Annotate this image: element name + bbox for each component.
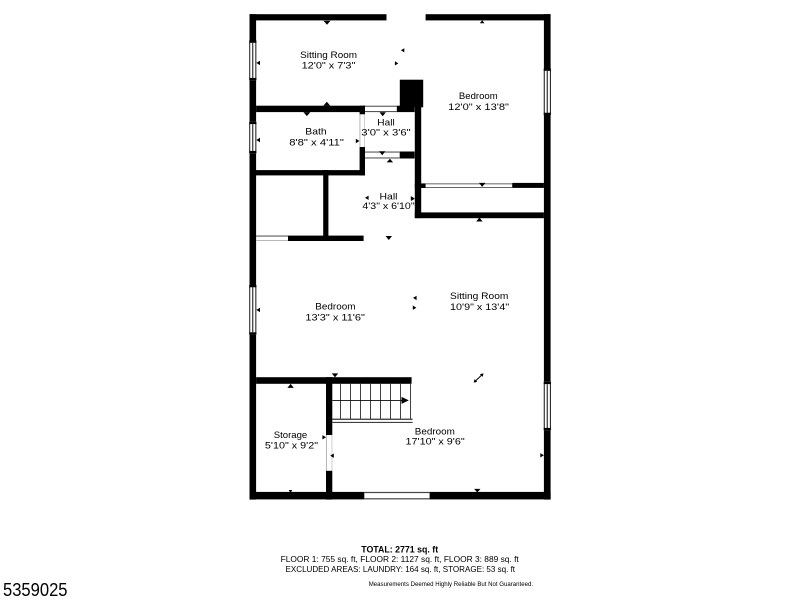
- svg-text:5'10" x 9'2": 5'10" x 9'2": [265, 441, 318, 452]
- svg-text:13'3" x 11'6": 13'3" x 11'6": [305, 312, 365, 323]
- svg-text:Storage: Storage: [274, 430, 308, 441]
- svg-text:Bath: Bath: [305, 126, 326, 137]
- svg-text:10'9" x 13'4": 10'9" x 13'4": [450, 302, 509, 313]
- svg-text:12'0" x 7'3": 12'0" x 7'3": [302, 60, 356, 71]
- svg-text:5359025: 5359025: [3, 579, 68, 600]
- svg-text:12'0" x 13'8": 12'0" x 13'8": [448, 102, 509, 113]
- svg-text:Measurements Deemed Highly Rel: Measurements Deemed Highly Reliable But …: [369, 581, 534, 588]
- svg-text:8'8" x 4'11": 8'8" x 4'11": [289, 137, 344, 148]
- svg-text:4'3" x 6'10": 4'3" x 6'10": [362, 201, 414, 212]
- svg-text:Sitting Room: Sitting Room: [450, 291, 508, 302]
- svg-text:EXCLUDED AREAS: LAUNDRY: 164 s: EXCLUDED AREAS: LAUNDRY: 164 sq. ft, STO…: [286, 564, 516, 574]
- svg-text:17'10" x 9'6": 17'10" x 9'6": [406, 437, 465, 448]
- svg-text:TOTAL: 2771 sq. ft: TOTAL: 2771 sq. ft: [361, 544, 438, 554]
- svg-text:Bedroom: Bedroom: [315, 302, 355, 313]
- svg-text:Bedroom: Bedroom: [459, 91, 498, 102]
- svg-text:FLOOR 1: 755 sq. ft, FLOOR 2:: FLOOR 1: 755 sq. ft, FLOOR 2: 1127 sq. f…: [281, 554, 520, 564]
- svg-text:3'0" x 3'6": 3'0" x 3'6": [361, 128, 410, 139]
